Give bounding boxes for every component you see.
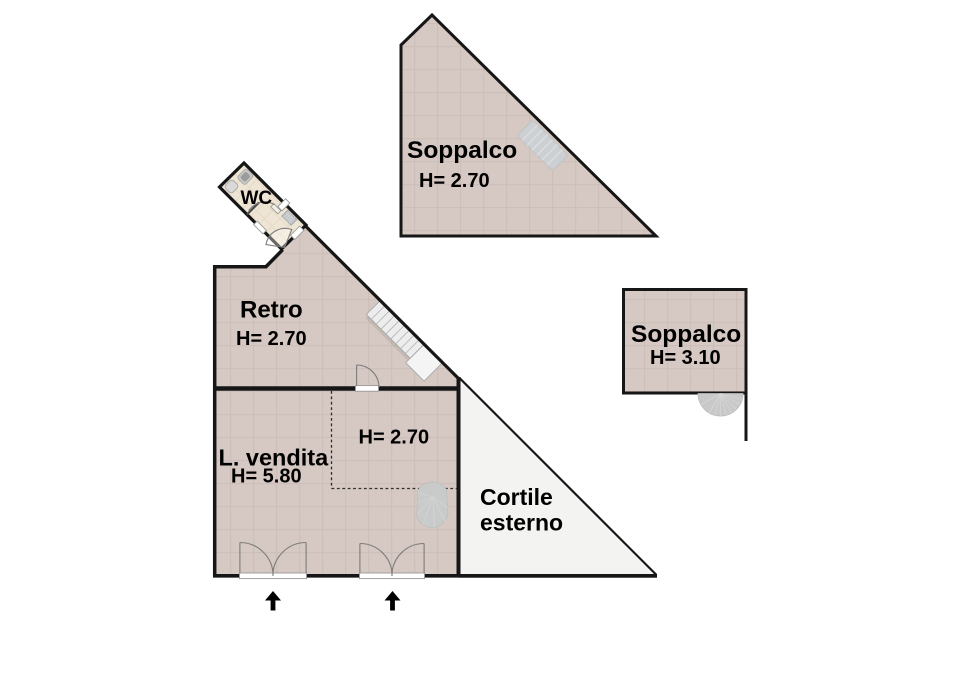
- svg-text:Cortile: Cortile: [480, 484, 553, 510]
- svg-text:esterno: esterno: [480, 510, 563, 536]
- svg-text:H= 3.10: H= 3.10: [650, 347, 721, 369]
- svg-text:H= 2.70: H= 2.70: [236, 328, 307, 350]
- svg-text:Retro: Retro: [240, 297, 303, 324]
- svg-text:Soppalco: Soppalco: [631, 321, 741, 348]
- svg-text:WC: WC: [241, 188, 273, 209]
- svg-text:H= 5.80: H= 5.80: [231, 466, 302, 488]
- svg-text:H= 2.70: H= 2.70: [359, 427, 430, 449]
- svg-text:Soppalco: Soppalco: [407, 137, 517, 164]
- svg-text:H= 2.70: H= 2.70: [419, 170, 490, 192]
